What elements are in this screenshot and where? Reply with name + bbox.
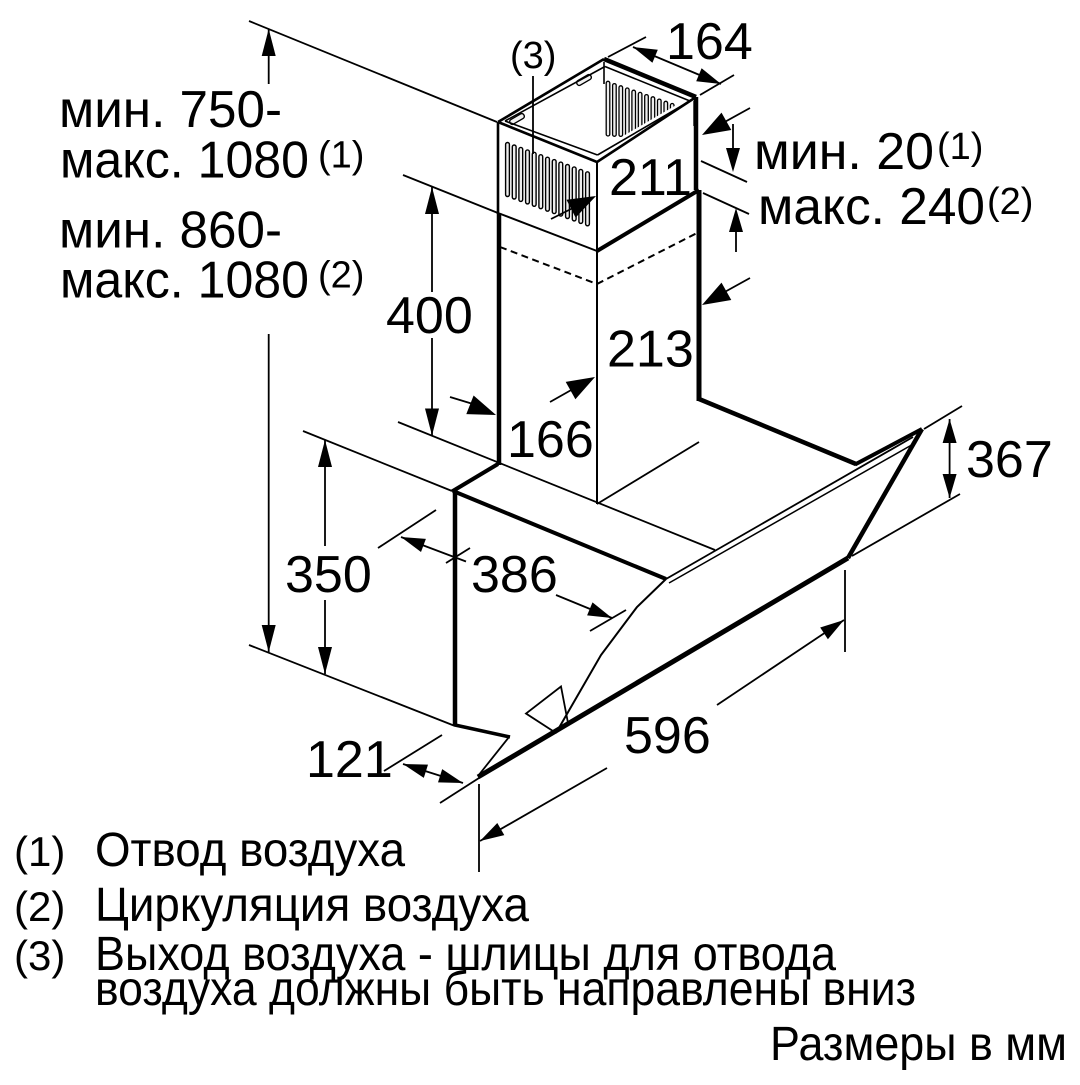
svg-text:мин. 20: мин. 20 xyxy=(754,123,934,181)
svg-text:(1): (1) xyxy=(318,135,364,177)
svg-text:(3): (3) xyxy=(14,932,65,979)
svg-text:211: 211 xyxy=(609,149,692,207)
svg-text:121: 121 xyxy=(306,731,393,789)
svg-text:(1): (1) xyxy=(937,126,983,168)
svg-text:макс. 1080: макс. 1080 xyxy=(60,252,309,310)
svg-text:(1): (1) xyxy=(14,828,65,875)
svg-text:Размеры в мм: Размеры в мм xyxy=(770,1018,1067,1071)
svg-text:мин. 750-: мин. 750- xyxy=(59,81,282,139)
svg-text:386: 386 xyxy=(471,546,558,604)
svg-text:350: 350 xyxy=(285,546,372,604)
svg-text:(2): (2) xyxy=(318,255,364,297)
svg-text:596: 596 xyxy=(624,707,711,765)
svg-text:макс. 240: макс. 240 xyxy=(758,178,985,236)
svg-text:213: 213 xyxy=(607,321,694,379)
svg-text:367: 367 xyxy=(966,431,1053,489)
svg-text:166: 166 xyxy=(507,411,594,469)
svg-text:воздуха должны быть направлены: воздуха должны быть направлены вниз xyxy=(95,963,916,1016)
svg-text:макс. 1080: макс. 1080 xyxy=(60,132,309,190)
svg-text:400: 400 xyxy=(386,287,473,345)
svg-text:164: 164 xyxy=(666,13,753,71)
svg-text:(2): (2) xyxy=(987,181,1033,223)
svg-text:Циркуляция воздуха: Циркуляция воздуха xyxy=(95,879,529,932)
svg-text:Отвод воздуха: Отвод воздуха xyxy=(95,824,405,877)
svg-text:(2): (2) xyxy=(14,883,65,930)
svg-text:(3): (3) xyxy=(510,35,556,77)
